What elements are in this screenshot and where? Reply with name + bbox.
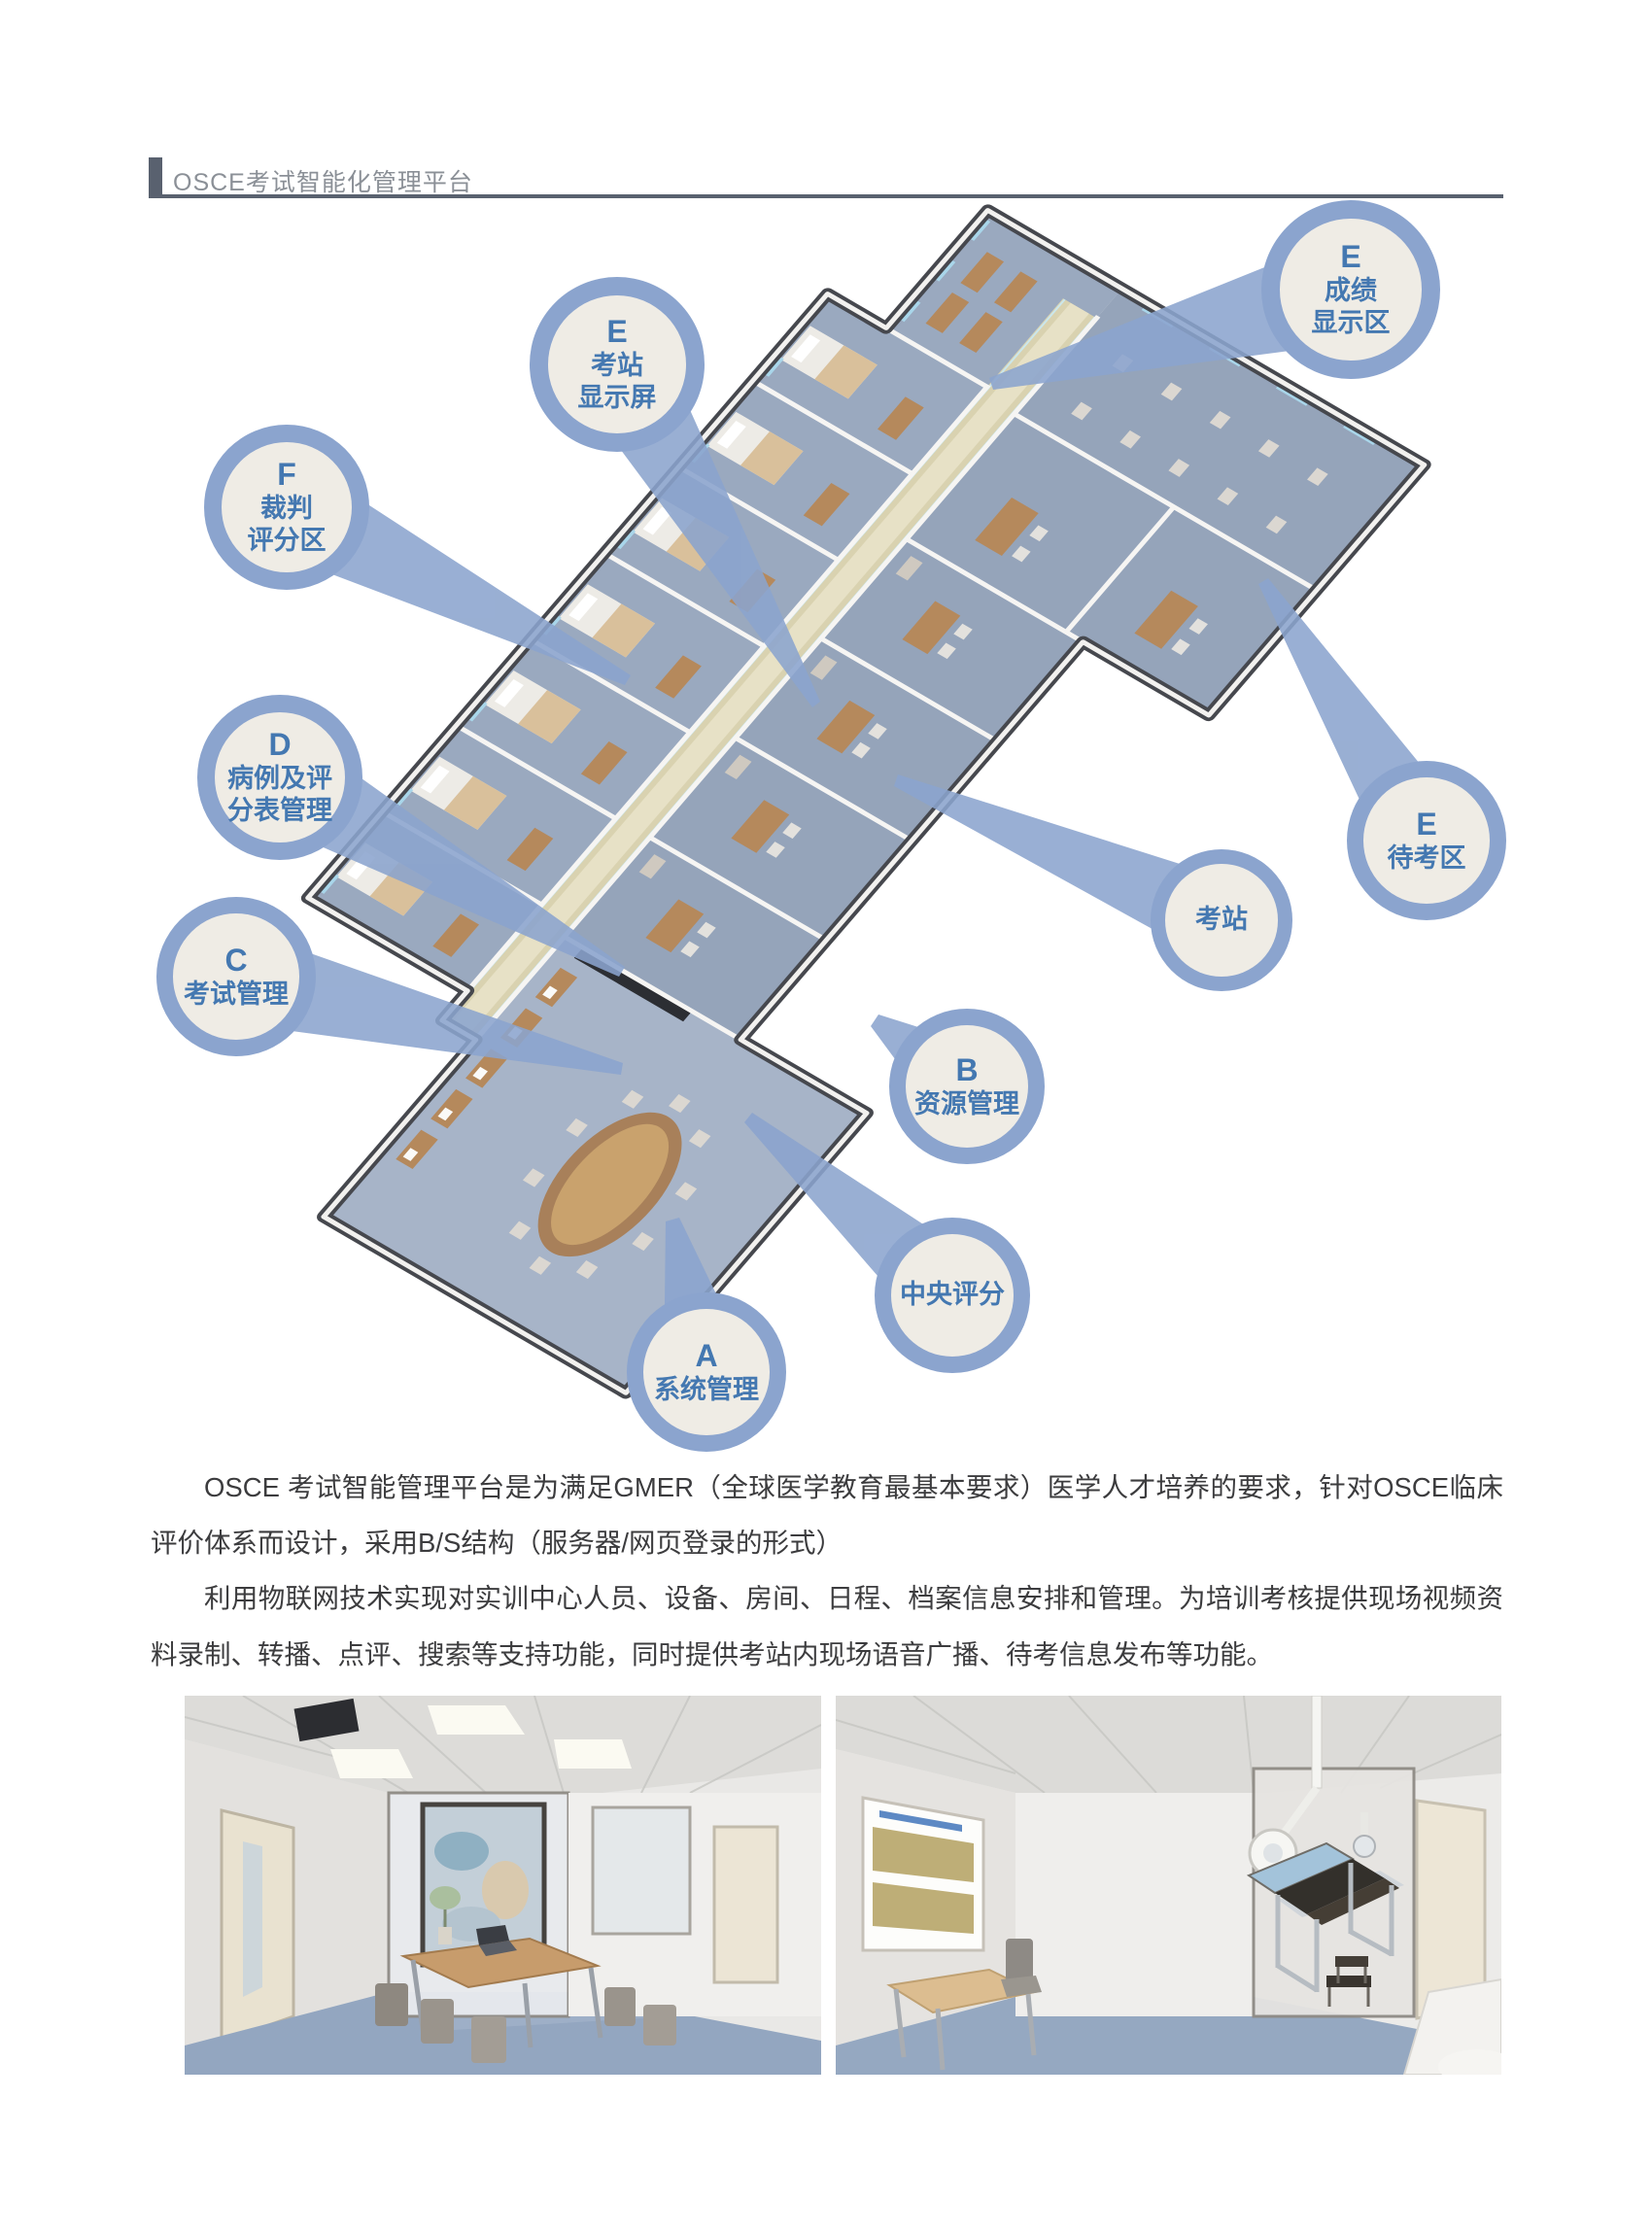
bubble-label: E 待考区	[1363, 777, 1490, 904]
callout-bubble-station-display: E 考站 显示屏	[530, 277, 705, 452]
bubble-line: 评分区	[247, 525, 326, 558]
bubble-line: 考站	[1195, 904, 1248, 937]
callout-bubble-resource-mgmt: B 资源管理	[889, 1009, 1045, 1164]
bubble-line: 裁判	[260, 493, 313, 526]
paragraph-2: 利用物联网技术实现对实训中心人员、设备、房间、日程、档案信息安排和管理。为培训考…	[151, 1570, 1503, 1681]
photo-meeting-room	[185, 1696, 821, 2075]
mirror	[593, 1807, 690, 1934]
bubble-line: 考试管理	[184, 979, 289, 1012]
bubble-label: B 资源管理	[906, 1025, 1028, 1148]
bubble-label: E 成绩 显示区	[1280, 219, 1421, 360]
paragraph-1: OSCE 考试智能管理平台是为满足GMER（全球医学教育最基本要求）医学人才培养…	[151, 1460, 1503, 1570]
bubble-line: 显示屏	[578, 382, 657, 415]
bubble-letter: B	[955, 1052, 978, 1088]
bubble-letter: F	[277, 457, 296, 493]
callout-bubble-system-mgmt: A 系统管理	[627, 1292, 786, 1452]
callout-bubble-central-scoring: 中央评分	[875, 1218, 1030, 1373]
bubble-line: 中央评分	[900, 1279, 1005, 1312]
callout-bubble-exam-mgmt: C 考试管理	[156, 897, 316, 1056]
bubble-letter: E	[1340, 239, 1360, 275]
bubble-line: 待考区	[1387, 842, 1465, 876]
bubble-line: 成绩	[1325, 275, 1377, 308]
door-glass	[243, 1841, 262, 1997]
bubble-letter: E	[606, 314, 627, 350]
dome-camera	[1354, 1836, 1375, 1857]
lamp-pole	[1312, 1696, 1322, 1788]
callout-bubble-score-display: E 成绩 显示区	[1261, 200, 1440, 379]
photo-exam-room	[836, 1696, 1501, 2075]
bubble-line: 显示区	[1311, 307, 1390, 340]
bubble-line: 考站	[591, 350, 643, 383]
bubble-line: 分表管理	[227, 795, 332, 828]
description-text: OSCE 考试智能管理平台是为满足GMER（全球医学教育最基本要求）医学人才培养…	[151, 1460, 1503, 1682]
plant	[430, 1886, 461, 1909]
bubble-line: 病例及评	[227, 763, 332, 796]
bubble-label: 考站	[1165, 864, 1277, 976]
bubble-label: F 裁判 评分区	[222, 442, 352, 572]
bubble-line: 系统管理	[654, 1374, 759, 1407]
chair	[1006, 1939, 1033, 1981]
bubble-line: 资源管理	[914, 1088, 1019, 1121]
bubble-letter: D	[268, 727, 291, 763]
bubble-letter: C	[224, 943, 247, 979]
bubble-label: E 考站 显示屏	[548, 295, 686, 433]
callout-bubble-exam-station: 考站	[1151, 849, 1292, 991]
bubble-letter: E	[1416, 807, 1436, 842]
bubble-letter: A	[695, 1338, 717, 1374]
bubble-label: 中央评分	[891, 1234, 1014, 1357]
bubble-label: D 病例及评 分表管理	[215, 712, 345, 842]
callout-bubble-case-scoresheet: D 病例及评 分表管理	[197, 695, 362, 860]
back-wall	[1015, 1793, 1254, 2016]
callout-bubble-waiting-area: E 待考区	[1347, 761, 1506, 920]
page-title: OSCE考试智能化管理平台	[173, 163, 473, 198]
bubble-label: C 考试管理	[173, 913, 299, 1040]
header-accent-bar	[149, 157, 162, 196]
bubble-label: A 系统管理	[643, 1309, 770, 1435]
hall-door	[714, 1827, 777, 1982]
callout-bubble-judge-scoring: F 裁判 评分区	[204, 425, 369, 590]
header-rule	[149, 194, 1503, 198]
